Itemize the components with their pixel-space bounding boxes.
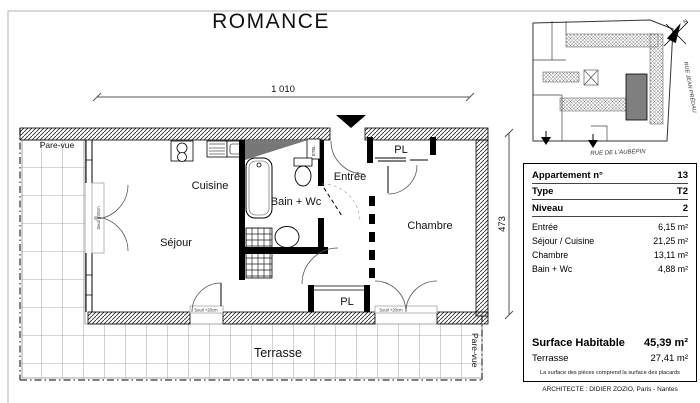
row-value: 27,41 m²: [651, 353, 689, 364]
toilet-tank: [294, 158, 312, 166]
row-type: Type T2: [532, 184, 688, 201]
row-label: Surface Habitable: [532, 337, 625, 349]
room-label-sejour: Séjour: [160, 237, 192, 249]
apartment-location-highlight: [626, 74, 647, 120]
row-apartment-number: Appartement n° 13: [532, 167, 688, 184]
row-label: Appartement n°: [532, 170, 603, 181]
row-value: 6,15 m²: [658, 222, 688, 232]
entrance-arrow-icon: [336, 115, 366, 128]
bathroom-wall-right-bottom: [318, 218, 324, 254]
street-label-right: RUE JEAN PRÉDAU: [682, 61, 698, 113]
chambre-door: [388, 165, 417, 194]
row-label: Chambre: [532, 250, 568, 260]
seuil-label-bottom-right: Seuil +20cm: [379, 308, 403, 313]
row-niveau: Niveau 2: [532, 200, 688, 217]
drawing-sheet: ROMANCE 1 010: [0, 0, 700, 403]
room-label-cuisine: Cuisine: [192, 180, 229, 192]
room-label-chambre: Chambre: [407, 220, 452, 232]
chambre-terrace-door: Seuil +20cm: [375, 281, 437, 313]
dimension-width-label: 1 010: [271, 84, 295, 95]
seuil-label-bottom-left: Seuil +20cm: [194, 308, 218, 313]
room-label-pl-bottom: PL: [340, 296, 353, 308]
pare-vue-label-right: Pare-vue: [470, 333, 480, 368]
row-entree: Entrée 6,15 m²: [532, 220, 688, 234]
row-value: 13: [677, 170, 688, 181]
row-terrasse: Terrasse 27,41 m²: [532, 351, 688, 365]
row-label: Niveau: [532, 203, 563, 214]
north-label: N: [683, 18, 690, 25]
table-note: La surface des pièces comprend la surfac…: [532, 370, 688, 376]
left-window-wall: [86, 140, 92, 312]
toilet-bowl: [295, 166, 311, 186]
entrance-door-arc: [331, 141, 364, 174]
row-surface-habitable: Surface Habitable 45,39 m²: [532, 335, 688, 351]
kitchen-fixtures: [171, 141, 245, 162]
dimension-height-label: 473: [497, 216, 508, 232]
etel-label: ETEL: [311, 145, 316, 156]
stairwell: [584, 70, 598, 85]
room-label-terrasse: Terrasse: [254, 346, 302, 360]
site-map: N RUE JEAN PRÉDAU RUE DE L'AUBÉPIN: [533, 18, 698, 157]
row-value: 21,25 m²: [653, 236, 688, 246]
closet-bottom: [302, 248, 364, 312]
row-bain-wc: Bain + Wc 4,88 m²: [532, 261, 688, 275]
row-label: Séjour / Cuisine: [532, 236, 594, 246]
dimension-width: 1 010: [93, 84, 474, 101]
row-value: 13,11 m²: [654, 250, 688, 260]
dimension-height: 473: [497, 129, 513, 319]
bathroom: ETEL: [239, 139, 360, 280]
row-value: 2: [683, 203, 688, 214]
row-sejour-cuisine: Séjour / Cuisine 21,25 m²: [532, 233, 688, 247]
row-value: 45,39 m²: [644, 337, 688, 349]
row-value: T2: [677, 186, 688, 197]
bathroom-door-dashed: [324, 188, 342, 216]
wall-wedge: [245, 140, 308, 160]
info-table: Appartement n° 13 Type T2 Niveau 2 Entré…: [523, 163, 697, 382]
pare-vue-label-left: Pare-vue: [40, 140, 75, 150]
bathroom-wall-left: [239, 140, 245, 280]
sejour-terrace-door: Seuil +20cm: [92, 183, 128, 253]
row-label: Type: [532, 186, 553, 197]
room-label-pl-top: PL: [394, 144, 407, 156]
row-chambre: Chambre 13,11 m²: [532, 247, 688, 261]
row-label: Bain + Wc: [532, 264, 572, 274]
partition-dashed: [364, 196, 375, 312]
room-label-bain-wc: Bain + Wc: [271, 196, 322, 208]
sejour-terrace-door-bottom: Seuil +20cm: [190, 283, 223, 313]
row-value: 4,88 m²: [658, 264, 688, 274]
row-label: Entrée: [532, 222, 558, 232]
washbasin: [275, 227, 299, 248]
row-label: Terrasse: [532, 353, 568, 364]
kitchen-drainer: [207, 141, 227, 157]
architect-credit: ARCHITECTE : DIDIER ZOZIO, Paris - Nante…: [523, 386, 697, 393]
street-label-bottom: RUE DE L'AUBÉPIN: [590, 148, 646, 157]
room-label-entree: Entrée: [334, 171, 366, 183]
